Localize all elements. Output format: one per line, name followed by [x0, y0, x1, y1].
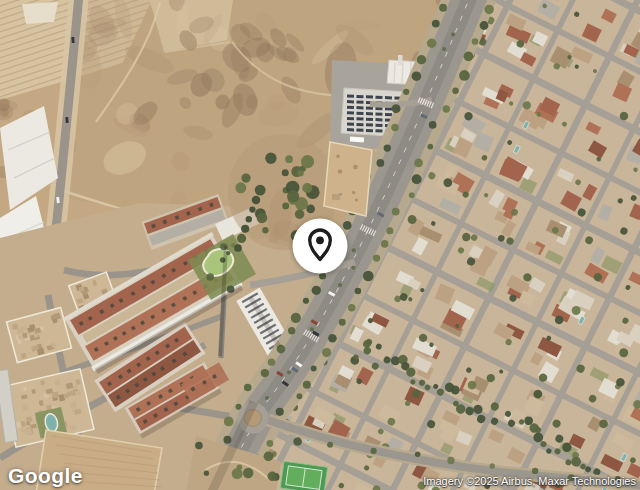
marker-circle	[293, 219, 348, 274]
location-marker[interactable]	[292, 218, 349, 275]
attribution-text: Imagery ©2025 Airbus, Maxar Technologies	[423, 475, 636, 487]
google-logo[interactable]: Google	[8, 464, 83, 488]
pin-dot	[316, 236, 324, 244]
map-viewport: Google Imagery ©2025 Airbus, Maxar Techn…	[0, 0, 640, 490]
